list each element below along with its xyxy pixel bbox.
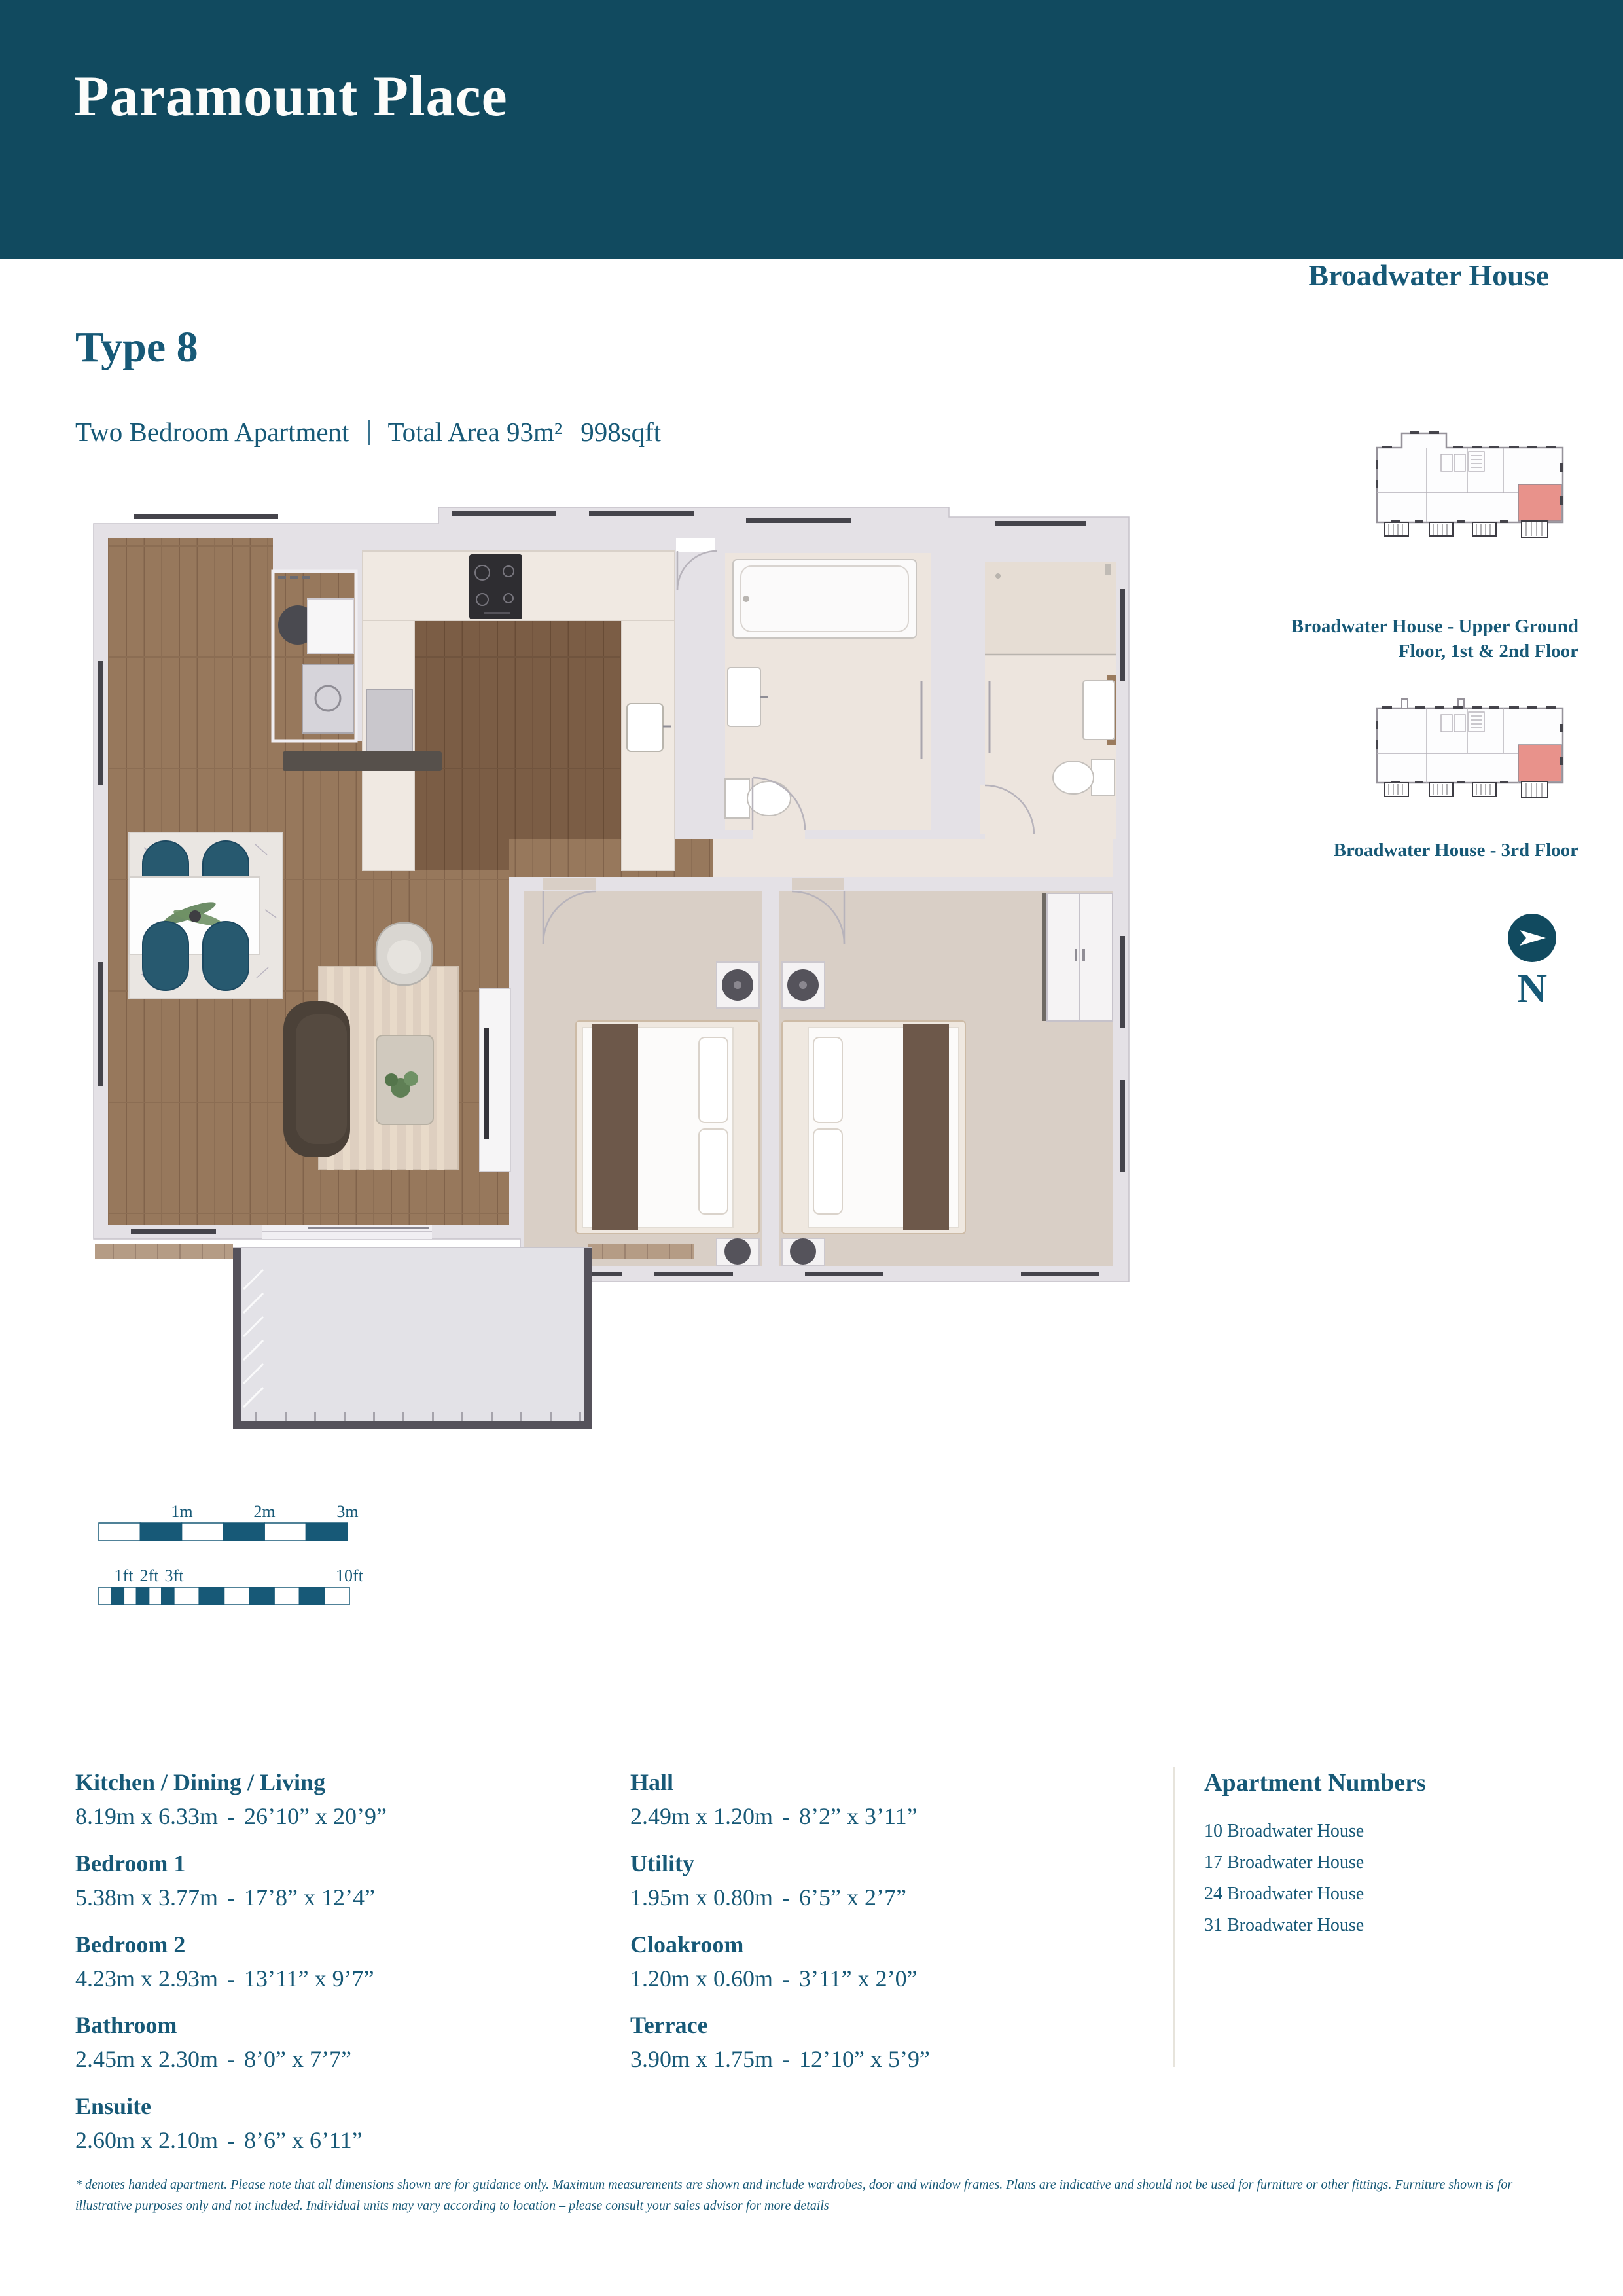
hob xyxy=(469,554,522,619)
sideboard xyxy=(283,751,442,771)
room-entry: Terrace 3.90m x 1.75m-12’10” x 5’9” xyxy=(630,2011,1115,2074)
highlighted-unit xyxy=(1518,745,1561,781)
tile-ledge-left xyxy=(95,1244,233,1259)
bathroom-sink xyxy=(728,668,760,726)
disclaimer-text: * denotes handed apartment. Please note … xyxy=(75,2174,1556,2216)
room-dimensions-column-1: Kitchen / Dining / Living 8.19m x 6.33m-… xyxy=(75,1768,599,2174)
kitchen-floor xyxy=(414,620,622,870)
locator-caption-third: Broadwater House - 3rd Floor xyxy=(1334,838,1578,863)
terrace-door xyxy=(262,1225,432,1239)
utility-closet xyxy=(273,571,356,741)
scale-label-3m: 3m xyxy=(336,1502,358,1521)
room-entry: Utility 1.95m x 0.80m-6’5” x 2’7” xyxy=(630,1850,1115,1912)
room-entry: Bathroom 2.45m x 2.30m-8’0” x 7’7” xyxy=(75,2011,599,2074)
floor-plan-drawing xyxy=(92,491,1139,1437)
floor-plan xyxy=(92,491,1139,1437)
scale-bar-drawing: 1m 2m 3m 1ft 2ft 3ft 10ft xyxy=(92,1492,373,1623)
development-title: Paramount Place xyxy=(74,68,508,126)
locator-plan-third-drawing xyxy=(1369,685,1572,816)
building-title: Broadwater House xyxy=(1308,260,1549,291)
highlighted-unit xyxy=(1518,484,1561,521)
room-entry: Kitchen / Dining / Living 8.19m x 6.33m-… xyxy=(75,1768,599,1831)
scale-label-2ft: 2ft xyxy=(140,1566,160,1585)
apartment-type-label: Two Bedroom Apartment xyxy=(75,419,349,446)
shower xyxy=(985,562,1116,655)
total-area-label: Total Area 93m² xyxy=(387,419,562,446)
column-divider xyxy=(1173,1767,1175,2067)
terrace xyxy=(233,1247,592,1429)
tv xyxy=(484,1028,489,1139)
apartment-numbers-panel: Apartment Numbers 10 Broadwater House 17… xyxy=(1204,1768,1584,1942)
room-dimensions-column-2: Hall 2.49m x 1.20m-8’2” x 3’11” Utility … xyxy=(630,1768,1115,2092)
ensuite-sink xyxy=(1083,681,1115,740)
dining-set xyxy=(129,833,283,999)
tile-ledge-right xyxy=(588,1244,694,1259)
scale-label-2m: 2m xyxy=(253,1502,275,1521)
apartment-number: 10 Broadwater House xyxy=(1204,1816,1584,1847)
locator-plan-upper xyxy=(1369,424,1572,555)
scale-bars: 1m 2m 3m 1ft 2ft 3ft 10ft xyxy=(92,1492,373,1623)
fridge xyxy=(366,689,412,756)
unit-type-title: Type 8 xyxy=(75,326,198,369)
room-entry: Bedroom 1 5.38m x 3.77m-17’8” x 12’4” xyxy=(75,1850,599,1912)
locator-plan-third xyxy=(1369,685,1572,816)
bathroom-toilet xyxy=(747,781,791,816)
header-banner: Paramount Place xyxy=(0,0,1623,259)
hall-floor xyxy=(509,839,713,877)
subtitle-divider xyxy=(368,420,370,445)
room-entry: Bedroom 2 4.23m x 2.93m-13’11” x 9’7” xyxy=(75,1931,599,1994)
scale-label-1ft: 1ft xyxy=(115,1566,134,1585)
bathroom xyxy=(725,553,931,840)
room-entry: Cloakroom 1.20m x 0.60m-3’11” x 2’0” xyxy=(630,1931,1115,1994)
locator-caption-upper: Broadwater House - Upper Ground Floor, 1… xyxy=(1291,614,1578,664)
ensuite xyxy=(980,562,1116,839)
apartment-number: 17 Broadwater House xyxy=(1204,1847,1584,1878)
washing-machine xyxy=(302,664,353,733)
apartment-number: 31 Broadwater House xyxy=(1204,1910,1584,1941)
north-indicator: N xyxy=(1507,912,1558,1009)
apartment-number: 24 Broadwater House xyxy=(1204,1878,1584,1910)
room-entry: Ensuite 2.60m x 2.10m-8’6” x 6’11” xyxy=(75,2092,599,2155)
scale-label-1m: 1m xyxy=(171,1502,192,1521)
bath xyxy=(733,560,916,638)
corridor-floor xyxy=(713,839,1113,877)
room-entry: Hall 2.49m x 1.20m-8’2” x 3’11” xyxy=(630,1768,1115,1831)
brochure-page: Paramount Place Type 8 Two Bedroom Apart… xyxy=(0,0,1623,2296)
unit-subtitle: Two Bedroom Apartment Total Area 93m² 99… xyxy=(75,419,661,446)
locator-plan-upper-drawing xyxy=(1369,424,1572,555)
sqft-label: 998sqft xyxy=(580,419,661,446)
kitchen-sink xyxy=(627,704,663,751)
ensuite-toilet xyxy=(1053,761,1094,794)
scale-label-10ft: 10ft xyxy=(336,1566,364,1585)
north-arrow-icon xyxy=(1507,912,1558,963)
north-label: N xyxy=(1507,967,1558,1009)
scale-label-3ft: 3ft xyxy=(165,1566,185,1585)
apartment-numbers-title: Apartment Numbers xyxy=(1204,1768,1584,1797)
